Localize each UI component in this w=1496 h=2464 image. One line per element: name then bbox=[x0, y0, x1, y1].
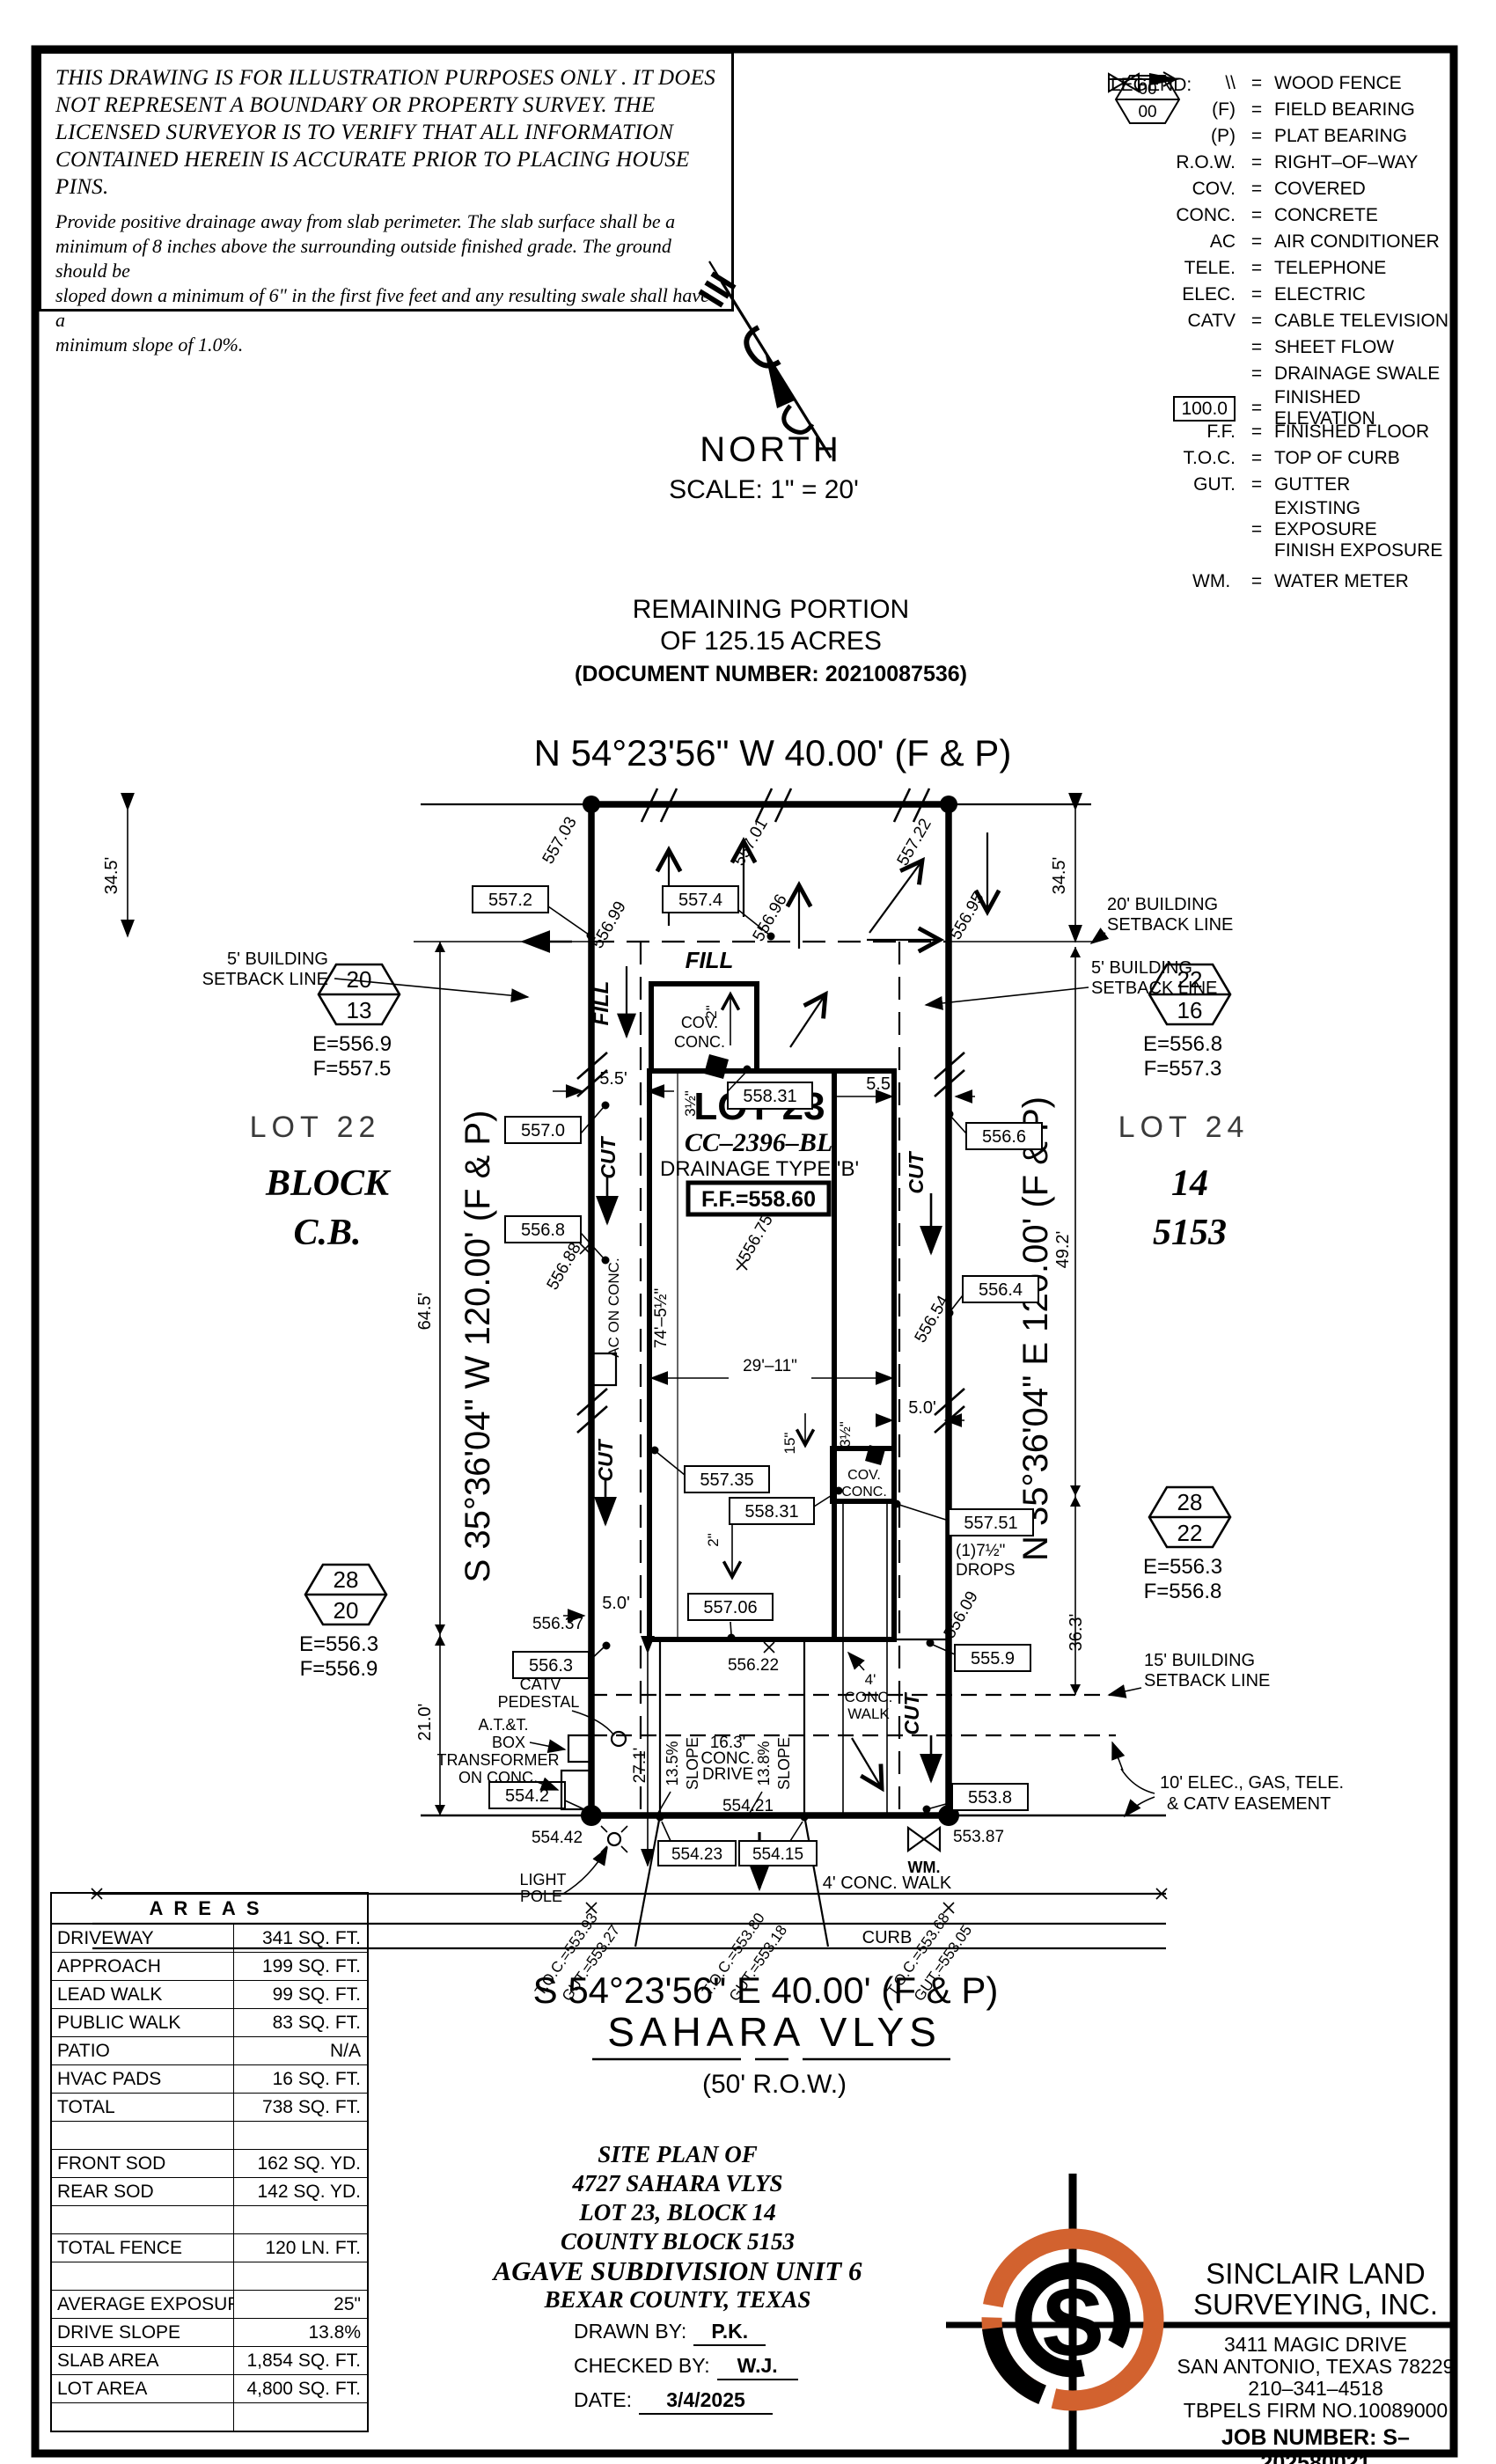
svg-text:13.5%: 13.5% bbox=[664, 1741, 681, 1786]
legend-row: 100.0=FINISHED ELEVATION bbox=[1140, 387, 1457, 419]
svg-text:WM.: WM. bbox=[908, 1859, 941, 1876]
bearing-south: S 54°23'56" E 40.00' (F & P) bbox=[533, 1969, 999, 2011]
svg-text:556.88: 556.88 bbox=[544, 1240, 585, 1294]
dim-74-5: 74'–5½" bbox=[652, 1288, 671, 1349]
hex-br-f: F=556.8 bbox=[1144, 1580, 1222, 1603]
hex-tr-e: E=556.8 bbox=[1143, 1032, 1222, 1056]
table-row: APPROACH199 SQ. FT. bbox=[52, 1953, 367, 1981]
svg-text:DROPS: DROPS bbox=[956, 1561, 1016, 1580]
legend-row: =SHEET FLOW bbox=[1140, 334, 1457, 361]
svg-text:22: 22 bbox=[1177, 1520, 1203, 1546]
svg-text:SETBACK LINE: SETBACK LINE bbox=[1091, 979, 1217, 998]
svg-text:5' BUILDING: 5' BUILDING bbox=[1091, 958, 1192, 978]
table-row bbox=[52, 2122, 367, 2150]
table-row: SLAB AREA1,854 SQ. FT. bbox=[52, 2347, 367, 2375]
svg-text:5.0': 5.0' bbox=[908, 1398, 936, 1418]
svg-text:558.31: 558.31 bbox=[743, 1087, 796, 1106]
scale-label: SCALE: 1" = 20' bbox=[669, 475, 859, 504]
svg-text:5.5': 5.5' bbox=[599, 1069, 627, 1089]
svg-text:20: 20 bbox=[334, 1597, 359, 1624]
company-address-line: SAN ANTONIO, TEXAS 78229 bbox=[1169, 2356, 1463, 2378]
light-pole-icon bbox=[601, 1826, 627, 1852]
drawn-by-label: DRAWN BY: bbox=[574, 2320, 686, 2343]
svg-text:554.42: 554.42 bbox=[532, 1829, 583, 1847]
title-line: 4727 SAHARA VLYS bbox=[458, 2169, 898, 2198]
svg-text:5.0': 5.0' bbox=[602, 1594, 630, 1613]
exposure-hex-bottom-left: 2820 bbox=[305, 1565, 386, 1624]
svg-text:554.2: 554.2 bbox=[505, 1786, 549, 1806]
water-meter-icon bbox=[908, 1828, 940, 1851]
title-line: BEXAR COUNTY, TEXAS bbox=[458, 2285, 898, 2314]
company-name-line2: SURVEYING, INC. bbox=[1188, 2289, 1443, 2320]
fill-label-h: FILL bbox=[686, 947, 734, 973]
title-line: LOT 23, BLOCK 14 bbox=[458, 2198, 898, 2227]
water-meter-legend-icon: WM. bbox=[1140, 571, 1239, 592]
hex-tr-f: F=557.3 bbox=[1144, 1057, 1222, 1081]
hex-tl-f: F=557.5 bbox=[313, 1057, 392, 1081]
svg-text:& CATV EASEMENT: & CATV EASEMENT bbox=[1167, 1794, 1331, 1814]
table-row: PATION/A bbox=[52, 2037, 367, 2065]
bearing-north: N 54°23'56" W 40.00' (F & P) bbox=[534, 732, 1012, 774]
hex-tl-e: E=556.9 bbox=[312, 1032, 392, 1056]
svg-text:13.8%: 13.8% bbox=[755, 1741, 773, 1786]
lot23-drainage: DRAINAGE TYPE 'B' bbox=[660, 1157, 859, 1181]
svg-text:557.2: 557.2 bbox=[488, 891, 532, 910]
table-row: PUBLIC WALK83 SQ. FT. bbox=[52, 2009, 367, 2037]
table-row bbox=[52, 2262, 367, 2291]
svg-text:556.3: 556.3 bbox=[529, 1656, 573, 1676]
hex-bl-f: F=556.9 bbox=[300, 1657, 378, 1681]
legend-row: =DRAINAGE SWALE bbox=[1140, 361, 1457, 387]
disclaimer-note: THIS DRAWING IS FOR ILLUSTRATION PURPOSE… bbox=[39, 51, 734, 312]
svg-text:(1)7½": (1)7½" bbox=[956, 1542, 1005, 1560]
svg-text:557.4: 557.4 bbox=[678, 891, 722, 910]
legend: LEGEND: \\=WOOD FENCE (F)=FIELD BEARING … bbox=[1105, 70, 1457, 602]
bearing-west: S 35°36'04" W 120.00' (F & P) bbox=[458, 1111, 497, 1583]
date-value: 3/4/2025 bbox=[639, 2388, 773, 2415]
svg-text:AC ON CONC.: AC ON CONC. bbox=[605, 1258, 622, 1357]
hex-br-e: E=556.3 bbox=[1143, 1555, 1222, 1579]
areas-table-title: AREAS bbox=[52, 1894, 367, 1925]
dim-27-1: 27.1' bbox=[631, 1748, 649, 1784]
svg-text:558.31: 558.31 bbox=[744, 1502, 798, 1522]
remaining-line3: (DOCUMENT NUMBER: 20210087536) bbox=[575, 662, 967, 686]
svg-text:553.87: 553.87 bbox=[953, 1828, 1004, 1846]
svg-text:CONC.: CONC. bbox=[845, 1689, 893, 1705]
svg-text:557.01: 557.01 bbox=[730, 816, 772, 869]
svg-text:13: 13 bbox=[347, 997, 372, 1023]
svg-text:CUT: CUT bbox=[900, 1691, 923, 1734]
driveway bbox=[635, 1639, 828, 1947]
legend-row: CATV=CABLE TELEVISION bbox=[1140, 308, 1457, 334]
disclaimer-line: LICENSED SURVEYOR IS TO VERIFY THAT ALL … bbox=[55, 119, 717, 146]
table-row: LEAD WALK99 SQ. FT. bbox=[52, 1981, 367, 2009]
legend-row: R.O.W.=RIGHT–OF–WAY bbox=[1140, 150, 1457, 176]
bearing-east: N 35°36'04" E 120.00' (F & P) bbox=[1016, 1096, 1055, 1561]
cov-label-east: COV. bbox=[847, 1468, 881, 1483]
svg-text:A.T.&T.: A.T.&T. bbox=[478, 1716, 528, 1734]
drainage-note-line: minimum of 8 inches above the surroundin… bbox=[55, 234, 717, 283]
legend-row: 0000 = EXISTING EXPOSUREFINISH EXPOSURE bbox=[1140, 498, 1457, 561]
title-line: SITE PLAN OF bbox=[458, 2140, 898, 2169]
walk-label: 4' CONC. WALK bbox=[823, 1874, 952, 1893]
checked-by-label: CHECKED BY: bbox=[574, 2354, 710, 2378]
svg-text:SETBACK LINE: SETBACK LINE bbox=[202, 970, 328, 989]
svg-text:SETBACK LINE: SETBACK LINE bbox=[1144, 1671, 1270, 1690]
drawn-by-block: DRAWN BY:P.K. CHECKED BY:W.J. DATE:3/4/2… bbox=[574, 2320, 838, 2423]
svg-text:2": 2" bbox=[703, 1005, 720, 1019]
dim-21-0: 21.0' bbox=[415, 1704, 435, 1742]
company-name: SINCLAIR LAND SURVEYING, INC. bbox=[1188, 2258, 1443, 2320]
svg-text:LIGHT: LIGHT bbox=[519, 1871, 566, 1888]
legend-row: ELEC.=ELECTRIC bbox=[1140, 282, 1457, 308]
conc-label-east: CONC. bbox=[841, 1485, 887, 1500]
lot22-label: LOT 22 bbox=[250, 1111, 381, 1144]
svg-text:PEDESTAL: PEDESTAL bbox=[498, 1693, 580, 1711]
lot22-cb: C.B. bbox=[293, 1213, 361, 1253]
svg-text:15' BUILDING: 15' BUILDING bbox=[1144, 1651, 1255, 1670]
svg-text:CUT: CUT bbox=[594, 1438, 617, 1481]
date-label: DATE: bbox=[574, 2388, 632, 2412]
east-walk-label: 4' CONC. WALK bbox=[845, 1653, 893, 1722]
svg-text:556.4: 556.4 bbox=[979, 1280, 1023, 1300]
svg-text:557.22: 557.22 bbox=[894, 816, 935, 869]
svg-text:CUT: CUT bbox=[905, 1150, 928, 1193]
svg-text:TRANSFORMER: TRANSFORMER bbox=[437, 1751, 560, 1769]
svg-text:SLOPE: SLOPE bbox=[775, 1737, 793, 1790]
remaining-line1: REMAINING PORTION bbox=[633, 595, 909, 624]
exposure-hex-top-left: 2013 bbox=[319, 964, 400, 1024]
site-plan-sheet: NORTH SCALE: 1" = 20' REMAINING PORTION … bbox=[0, 0, 1496, 2464]
svg-text:556.22: 556.22 bbox=[728, 1656, 779, 1675]
svg-text:ON CONC.: ON CONC. bbox=[458, 1769, 538, 1786]
drainage-note-line: minimum slope of 1.0%. bbox=[55, 333, 717, 357]
logo-letter: S bbox=[1041, 2269, 1104, 2375]
svg-text:556.75: 556.75 bbox=[736, 1212, 777, 1265]
company-address: 3411 MAGIC DRIVE SAN ANTONIO, TEXAS 7822… bbox=[1169, 2334, 1463, 2422]
finished-floor-value: F.F.=558.60 bbox=[701, 1187, 816, 1212]
dim-34-5-left: 34.5' bbox=[102, 857, 121, 895]
svg-text:2": 2" bbox=[705, 1533, 722, 1547]
svg-text:28: 28 bbox=[1177, 1489, 1203, 1515]
svg-text:CATV: CATV bbox=[520, 1676, 561, 1693]
areas-table: AREAS DRIVEWAY341 SQ. FT. APPROACH199 SQ… bbox=[50, 1892, 369, 2432]
job-number: JOB NUMBER: S–202580021 bbox=[1169, 2425, 1463, 2464]
drawn-by-value: P.K. bbox=[693, 2320, 766, 2346]
north-label: NORTH bbox=[700, 430, 841, 469]
lot23-cc: CC–2396–BL bbox=[685, 1128, 832, 1157]
svg-text:POLE: POLE bbox=[520, 1888, 562, 1905]
table-row: REAR SOD142 SQ. YD. bbox=[52, 2178, 367, 2206]
svg-text:SLOPE: SLOPE bbox=[684, 1737, 701, 1790]
dim-49-2: 49.2' bbox=[1053, 1231, 1073, 1269]
table-row: HVAC PADS16 SQ. FT. bbox=[52, 2065, 367, 2094]
finished-floor-box: F.F.=558.60 bbox=[688, 1183, 829, 1214]
company-address-line: 3411 MAGIC DRIVE bbox=[1169, 2334, 1463, 2356]
svg-text:557.51: 557.51 bbox=[964, 1514, 1017, 1533]
svg-text:553.8: 553.8 bbox=[968, 1788, 1012, 1808]
svg-text:3½": 3½" bbox=[682, 1090, 699, 1117]
legend-row: F.F.=FINISHED FLOOR bbox=[1140, 419, 1457, 445]
street-row: (50' R.O.W.) bbox=[702, 2070, 847, 2099]
exposure-hex-bottom-right: 2822 bbox=[1149, 1487, 1230, 1547]
fill-label-v: FILL bbox=[590, 981, 613, 1026]
legend-row: TELE.=TELEPHONE bbox=[1140, 255, 1457, 282]
svg-text:16: 16 bbox=[1177, 997, 1203, 1023]
company-name-line1: SINCLAIR LAND bbox=[1188, 2258, 1443, 2289]
remaining-line2: OF 125.15 ACRES bbox=[660, 627, 882, 656]
title-line: COUNTY BLOCK 5153 bbox=[458, 2227, 898, 2256]
dim-64-5: 64.5' bbox=[415, 1293, 435, 1331]
table-row: TOTAL FENCE120 LN. FT. bbox=[52, 2234, 367, 2262]
dim-34-5-right: 34.5' bbox=[1050, 857, 1069, 895]
table-row: DRIVE SLOPE13.8% bbox=[52, 2319, 367, 2347]
checked-by-value: W.J. bbox=[717, 2354, 798, 2380]
street-name: SAHARA VLYS bbox=[607, 2009, 942, 2055]
drainage-note-line: sloped down a minimum of 6" in the first… bbox=[55, 283, 717, 333]
svg-text:3½": 3½" bbox=[837, 1421, 854, 1448]
svg-text:00: 00 bbox=[1138, 103, 1156, 121]
svg-text:555.9: 555.9 bbox=[971, 1649, 1015, 1668]
hex-bl-e: E=556.3 bbox=[299, 1632, 378, 1656]
svg-text:20' BUILDING: 20' BUILDING bbox=[1107, 895, 1218, 914]
table-row: LOT AREA4,800 SQ. FT. bbox=[52, 2375, 367, 2403]
disclaimer-line: NOT REPRESENT A BOUNDARY OR PROPERTY SUR… bbox=[55, 92, 717, 119]
dim-36-3: 36.3' bbox=[1067, 1614, 1086, 1652]
svg-text:557.0: 557.0 bbox=[521, 1121, 565, 1140]
svg-text:SETBACK LINE: SETBACK LINE bbox=[1107, 915, 1233, 935]
legend-row: WM. =WATER METER bbox=[1140, 561, 1457, 602]
dim-29-11: 29'–11" bbox=[743, 1357, 797, 1375]
svg-text:BOX: BOX bbox=[492, 1734, 525, 1751]
table-row bbox=[52, 2206, 367, 2234]
svg-text:554.21: 554.21 bbox=[722, 1797, 774, 1815]
curb-label: CURB bbox=[862, 1928, 913, 1947]
lot24-label: LOT 24 bbox=[1118, 1111, 1250, 1144]
lot24-14: 14 bbox=[1171, 1163, 1208, 1204]
svg-text:10' ELEC., GAS, TELE.: 10' ELEC., GAS, TELE. bbox=[1160, 1773, 1344, 1793]
table-row: TOTAL738 SQ. FT. bbox=[52, 2094, 367, 2122]
svg-text:554.23: 554.23 bbox=[671, 1845, 722, 1864]
lot22-block: BLOCK bbox=[265, 1163, 392, 1204]
finished-elevation-box: 100.0 bbox=[1173, 396, 1236, 422]
table-row: AVERAGE EXPOSURE25" bbox=[52, 2291, 367, 2319]
svg-text:15": 15" bbox=[781, 1433, 798, 1455]
svg-text:4': 4' bbox=[865, 1671, 876, 1688]
lot24-5153: 5153 bbox=[1153, 1213, 1227, 1253]
svg-text:556.8: 556.8 bbox=[521, 1221, 565, 1240]
legend-row: COV.=COVERED bbox=[1140, 176, 1457, 202]
legend-row: T.O.C.=TOP OF CURB bbox=[1140, 445, 1457, 472]
svg-text:556.6: 556.6 bbox=[982, 1127, 1026, 1147]
table-row: DRIVEWAY341 SQ. FT. bbox=[52, 1925, 367, 1953]
legend-row: GUT.=GUTTER bbox=[1140, 472, 1457, 498]
svg-text:5.5': 5.5' bbox=[866, 1074, 894, 1094]
legend-row: CONC.=CONCRETE bbox=[1140, 202, 1457, 229]
table-row: FRONT SOD162 SQ. YD. bbox=[52, 2150, 367, 2178]
spot-elevations: 557.03 557.01 557.22 556.99 556.96 556.9… bbox=[532, 814, 1004, 1847]
company-firm-no: TBPELS FIRM NO.10089000 bbox=[1169, 2400, 1463, 2422]
svg-text:557.35: 557.35 bbox=[700, 1470, 753, 1490]
title-block: SITE PLAN OF 4727 SAHARA VLYS LOT 23, BL… bbox=[458, 2140, 898, 2314]
svg-text:28: 28 bbox=[334, 1566, 359, 1593]
disclaimer-line: THIS DRAWING IS FOR ILLUSTRATION PURPOSE… bbox=[55, 64, 717, 92]
svg-text:557.06: 557.06 bbox=[703, 1598, 757, 1617]
company-phone: 210–341–4518 bbox=[1169, 2378, 1463, 2400]
svg-text:556.95: 556.95 bbox=[947, 890, 988, 943]
svg-text:5' BUILDING: 5' BUILDING bbox=[227, 950, 328, 969]
svg-text:DRIVE: DRIVE bbox=[702, 1765, 753, 1784]
conc-label-top: CONC. bbox=[674, 1033, 725, 1051]
svg-text:554.15: 554.15 bbox=[752, 1845, 803, 1864]
svg-text:557.03: 557.03 bbox=[539, 814, 581, 868]
title-line: AGAVE SUBDIVISION UNIT 6 bbox=[458, 2256, 898, 2285]
svg-text:CUT: CUT bbox=[597, 1135, 620, 1178]
legend-row: AC=AIR CONDITIONER bbox=[1140, 229, 1457, 255]
disclaimer-line: CONTAINED HEREIN IS ACCURATE PRIOR TO PL… bbox=[55, 146, 717, 201]
drainage-note-line: Provide positive drainage away from slab… bbox=[55, 209, 717, 234]
table-row bbox=[52, 2403, 367, 2431]
svg-text:556.37: 556.37 bbox=[532, 1615, 583, 1633]
remaining-portion-note: REMAINING PORTION OF 125.15 ACRES (DOCUM… bbox=[575, 595, 967, 686]
svg-text:WALK: WALK bbox=[847, 1705, 890, 1722]
